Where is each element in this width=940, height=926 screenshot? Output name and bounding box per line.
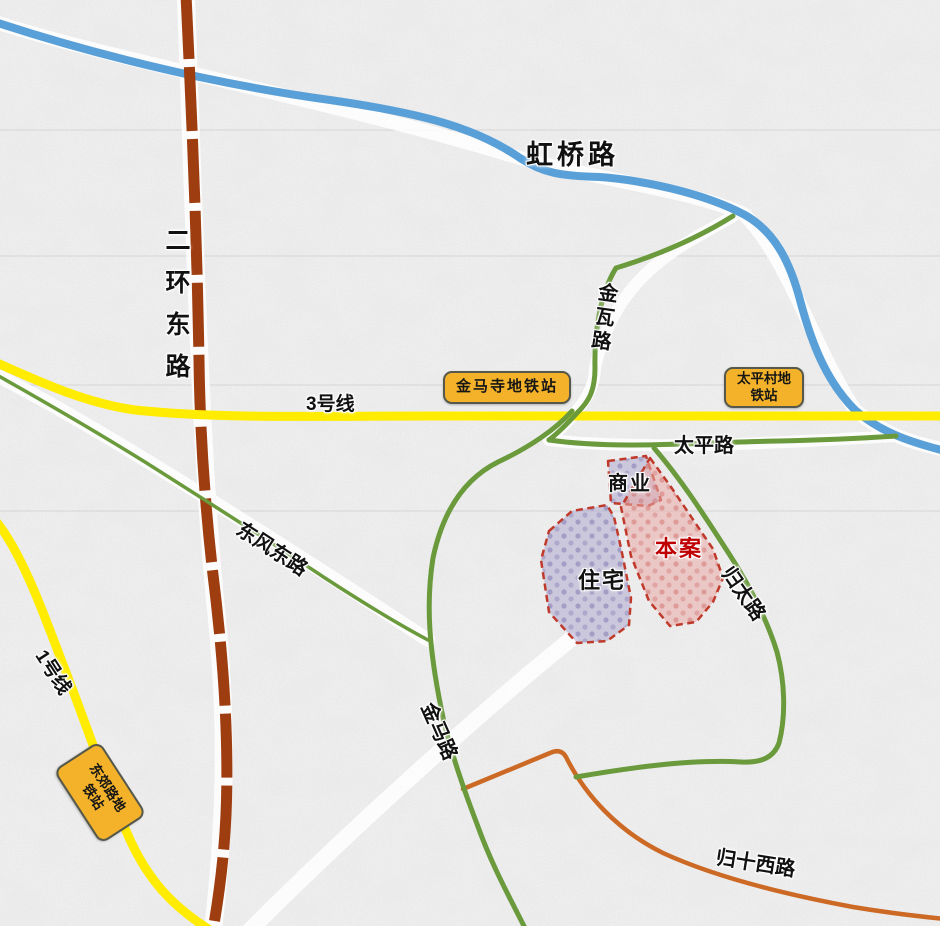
station-taipingcun: 太平村地 铁站	[724, 367, 804, 408]
station-taipingcun-line2: 铁站	[751, 388, 778, 405]
site-location-map: 虹桥路 二环东路 3号线 1号线 金瓦路 太平路 东风东路 金马路 归太路 归十…	[0, 0, 940, 926]
station-taipingcun-line1: 太平村地	[737, 371, 791, 388]
station-jinmasi-label: 金马寺地铁站	[456, 378, 558, 397]
map-canvas	[0, 0, 940, 926]
station-jinmasi: 金马寺地铁站	[443, 371, 571, 404]
